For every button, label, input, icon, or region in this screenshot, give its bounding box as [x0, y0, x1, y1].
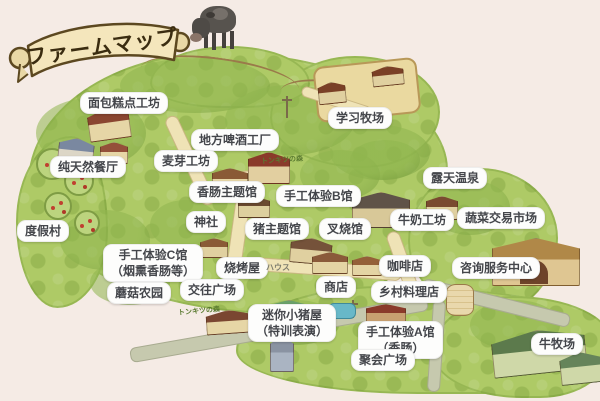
farm-map: ファームマップ 面包糕点工坊 地方啤酒工厂 学习牧场 麦芽工坊 纯天然餐厅 露天… [0, 0, 600, 401]
orchard-bush [44, 192, 72, 220]
map-label-info-center[interactable]: 咨询服务中心 [452, 257, 540, 279]
map-label-vegetable-market[interactable]: 蔬菜交易市场 [457, 207, 545, 229]
title-banner: ファームマップ [4, 12, 204, 92]
map-label-mini-pig-line1: 迷你小猪屋 [262, 307, 322, 323]
map-label-learning-ranch[interactable]: 学习牧场 [328, 107, 392, 129]
map-label-milk-workshop[interactable]: 牛奶工坊 [390, 209, 454, 231]
cattle-ear [206, 12, 215, 18]
map-label-party-plaza[interactable]: 聚会广场 [351, 349, 415, 371]
map-label-resort-village[interactable]: 度假村 [17, 220, 69, 242]
tree-canopy [350, 140, 420, 180]
cattle-leg [230, 31, 234, 49]
orchard-bush [74, 210, 100, 236]
map-label-handcraft-a-line1: 手工体验A馆 [366, 324, 435, 340]
house-katakana-note: ハウス [266, 262, 290, 273]
map-label-handcraft-b[interactable]: 手工体验B馆 [276, 185, 361, 207]
map-label-shop[interactable]: 商店 [316, 276, 356, 298]
map-label-char-siu-hall[interactable]: 叉烧馆 [319, 218, 371, 240]
map-label-pig-theme-hall[interactable]: 猪主题馆 [245, 218, 309, 240]
map-label-malt-workshop[interactable]: 麦芽工坊 [154, 150, 218, 172]
map-label-cattle-ranch[interactable]: 牛牧场 [531, 333, 583, 355]
map-label-bbq-house[interactable]: 烧烤屋 [216, 257, 268, 279]
map-label-sausage-theme-hall[interactable]: 香肠主题馆 [189, 181, 265, 203]
map-label-mushroom-farm[interactable]: 蘑菇农园 [107, 282, 171, 304]
map-label-handcraft-c-line2: （烟熏香肠等） [111, 263, 195, 279]
map-label-brewery[interactable]: 地方啤酒工厂 [191, 129, 279, 151]
map-label-open-air-onsen[interactable]: 露天温泉 [423, 167, 487, 189]
map-label-exchange-plaza[interactable]: 交往广场 [180, 279, 244, 301]
map-label-shrine[interactable]: 神社 [186, 211, 226, 233]
map-label-mini-pig-line2: （特训表演） [256, 323, 328, 339]
map-label-handcraft-c[interactable]: 手工体验C馆 （烟熏香肠等） [103, 244, 203, 282]
utility-pole [286, 96, 288, 118]
map-label-natural-restaurant[interactable]: 纯天然餐厅 [50, 156, 126, 178]
map-label-country-restaurant[interactable]: 乡村料理店 [371, 281, 447, 303]
map-label-bakery[interactable]: 面包糕点工坊 [80, 92, 168, 114]
map-label-mini-pig-house[interactable]: 迷你小猪屋 （特训表演） [248, 304, 336, 342]
cattle-leg [212, 32, 216, 50]
barrel-silo [446, 284, 474, 316]
map-label-coffee-shop[interactable]: 咖啡店 [379, 255, 431, 277]
map-label-handcraft-c-line1: 手工体验C馆 [119, 247, 188, 263]
